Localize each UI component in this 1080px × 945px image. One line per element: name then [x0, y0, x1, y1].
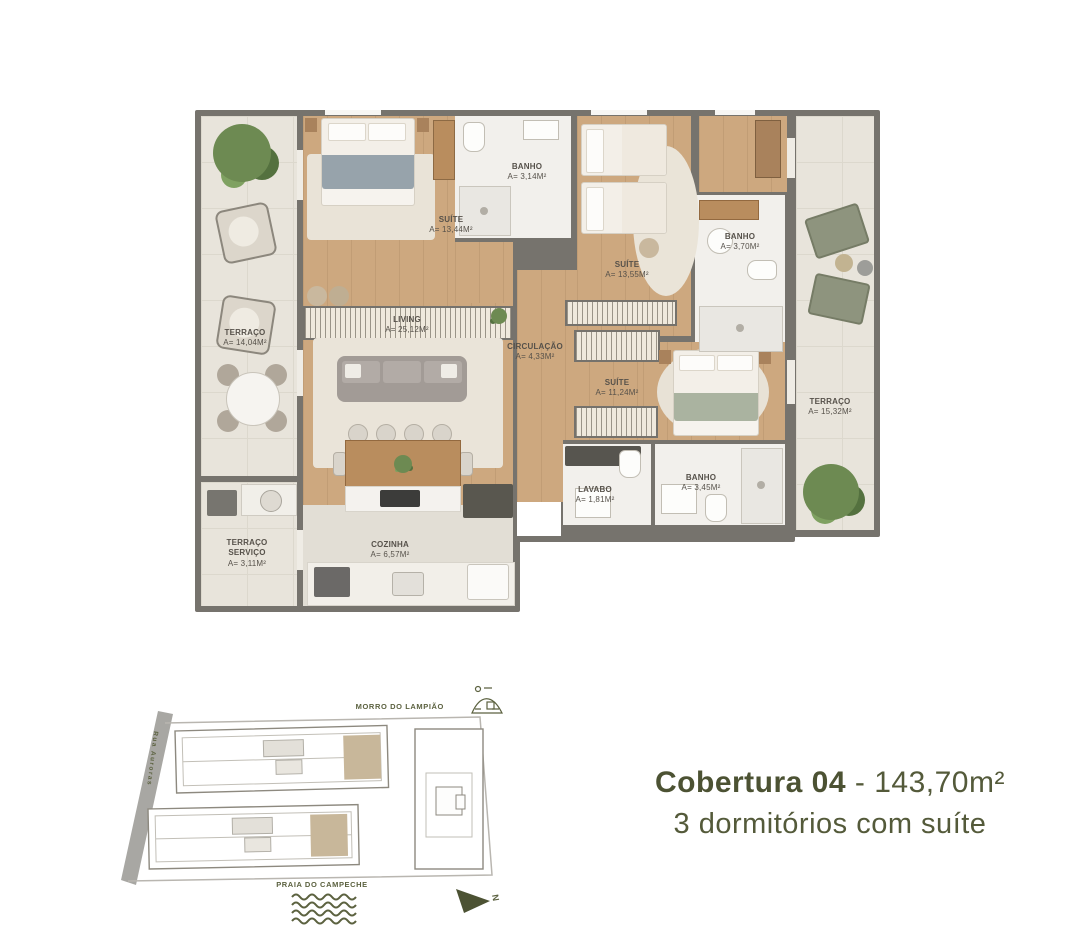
door-opening	[297, 530, 303, 570]
room-name: LAVABO	[555, 485, 635, 495]
title-separator: -	[846, 766, 874, 799]
shower	[741, 448, 783, 524]
throw-pillow	[441, 364, 457, 378]
entry-notch	[517, 502, 561, 536]
room-suite-1-ext	[455, 242, 513, 306]
room-name: TERRAÇO SERVIÇO	[221, 538, 273, 559]
room-area: A= 15,32m²	[790, 407, 870, 417]
wardrobe-unit	[433, 120, 455, 180]
bed-suite-3	[673, 350, 759, 436]
pillow	[717, 355, 753, 371]
room-name: TERRAÇO	[205, 328, 285, 338]
unit-highlight	[343, 735, 381, 780]
pillow	[586, 129, 604, 173]
room-label-suite1: SUÍTE A= 13,44m²	[411, 215, 491, 236]
building-3	[415, 729, 483, 869]
window	[591, 110, 647, 115]
chair	[459, 452, 473, 476]
pouf	[329, 286, 349, 306]
title-line-2: 3 dormitórios com suíte	[600, 804, 1060, 844]
shower	[699, 306, 783, 352]
plant	[803, 464, 859, 520]
pouf	[639, 238, 659, 258]
unit-area: 143,70m²	[874, 766, 1005, 799]
plant	[491, 308, 507, 324]
room-name: SUÍTE	[587, 260, 667, 270]
room-area: A= 4,33m²	[495, 352, 575, 362]
drain	[757, 481, 765, 489]
side-table	[857, 260, 873, 276]
room-label-living: LIVING A= 25,12m²	[367, 315, 447, 336]
nightstand	[659, 350, 671, 364]
room-area: A= 13,55m²	[587, 270, 667, 280]
room-label-banho3: BANHO A= 3,45m²	[661, 473, 741, 494]
pillow	[679, 355, 715, 371]
room-label-cozinha: COZINHA A= 6,57m²	[350, 540, 430, 561]
room-area: A= 6,57m²	[350, 550, 430, 560]
page: { "title": { "unit": "Cobertura 04", "se…	[0, 0, 1080, 945]
room-label-terraco-servico: TERRAÇO SERVIÇO A= 3,11m²	[221, 538, 273, 569]
sink	[392, 572, 424, 596]
north-label: N	[490, 894, 501, 903]
building-2	[148, 805, 359, 869]
north-arrow: N	[456, 889, 501, 913]
counter-dark	[463, 484, 513, 518]
bed-suite-1	[321, 118, 415, 206]
room-label-terraco: TERRAÇO A= 14,04m²	[205, 328, 285, 349]
armchair-cushion	[226, 214, 262, 250]
wardrobe-strip	[565, 300, 677, 326]
room-name: CIRCULAÇÃO	[495, 342, 575, 352]
blanket	[674, 393, 758, 421]
room-area: A= 3,11m²	[221, 559, 273, 569]
room-name: BANHO	[487, 162, 567, 172]
unit-highlight	[310, 814, 348, 857]
room-area: A= 3,14m²	[487, 172, 567, 182]
toilet	[747, 260, 777, 280]
room-label-suite2: SUÍTE A= 13,55m²	[587, 260, 667, 281]
room-area: A= 1,81m²	[555, 495, 635, 505]
door-opening	[787, 138, 795, 178]
washer	[207, 490, 237, 516]
blanket	[322, 155, 414, 189]
waves-icon	[292, 895, 356, 924]
window	[715, 110, 755, 115]
building-1	[175, 725, 389, 793]
room-name: BANHO	[700, 232, 780, 242]
title-line-1: Cobertura 04 - 143,70m²	[600, 762, 1060, 804]
cooktop	[380, 490, 420, 507]
wardrobe-unit	[755, 120, 781, 178]
drain	[480, 207, 488, 215]
window	[325, 110, 381, 115]
plant	[394, 455, 412, 473]
dining-island	[345, 440, 461, 488]
room-label-banho1: BANHO A= 3,14m²	[487, 162, 567, 183]
pillow	[328, 123, 366, 141]
blanket-fold	[674, 421, 758, 435]
pillow	[368, 123, 406, 141]
drain	[736, 324, 744, 332]
sofa-cushion	[383, 361, 421, 383]
blanket-fold	[322, 189, 414, 205]
side-table	[835, 254, 853, 272]
toilet	[619, 450, 641, 478]
basin	[260, 490, 282, 512]
door-opening	[297, 350, 303, 396]
bed-suite-2a	[581, 124, 667, 176]
room-area: A= 11,24m²	[577, 388, 657, 398]
room-label-banho2: BANHO A= 3,70m²	[700, 232, 780, 253]
praia-label: PRAIA DO CAMPECHE	[276, 880, 368, 889]
blanket	[622, 183, 666, 233]
wardrobe-strip	[574, 406, 658, 438]
nightstand	[417, 118, 429, 132]
unit-name: Cobertura 04	[655, 766, 846, 799]
sink	[523, 120, 559, 140]
oven	[314, 567, 350, 597]
bed-suite-2b	[581, 182, 667, 234]
sofa	[337, 356, 467, 402]
room-name: COZINHA	[350, 540, 430, 550]
title-block: Cobertura 04 - 143,70m² 3 dormitórios co…	[600, 762, 1060, 844]
vanity	[699, 200, 759, 220]
blanket	[622, 125, 666, 175]
room-name: SUÍTE	[411, 215, 491, 225]
pillow	[586, 187, 604, 231]
plant	[213, 124, 271, 182]
room-name: SUÍTE	[577, 378, 657, 388]
fridge	[467, 564, 509, 600]
wardrobe-strip	[574, 330, 660, 362]
room-area: A= 14,04m²	[205, 338, 285, 348]
nightstand	[759, 350, 771, 364]
room-name: TERRAÇO	[790, 397, 870, 407]
room-label-terraco2: TERRAÇO A= 15,32m²	[790, 397, 870, 418]
room-area: A= 25,12m²	[367, 325, 447, 335]
site-plan: N MORRO DO LAMPIÃO PRAIA DO CAMPECHE Rua…	[120, 683, 625, 943]
room-name: LIVING	[367, 315, 447, 325]
floor-plan: TERRAÇO A= 14,04m² SUÍTE A= 13,44m² BANH…	[195, 110, 885, 612]
room-label-suite3: SUÍTE A= 11,24m²	[577, 378, 657, 399]
nightstand	[305, 118, 317, 132]
toilet	[705, 494, 727, 522]
room-name: BANHO	[661, 473, 741, 483]
room-area: A= 13,44m²	[411, 225, 491, 235]
room-area: A= 3,70m²	[700, 242, 780, 252]
hill-icon	[472, 687, 502, 714]
terrace-table	[226, 372, 280, 426]
armchair	[214, 201, 278, 265]
toilet	[463, 122, 485, 152]
pouf	[307, 286, 327, 306]
laundry-counter	[241, 484, 297, 516]
kitchen-counter	[345, 486, 461, 512]
throw-pillow	[345, 364, 361, 378]
door-opening	[297, 150, 303, 200]
room-label-lavabo: LAVABO A= 1,81m²	[555, 485, 635, 506]
room-area: A= 3,45m²	[661, 483, 741, 493]
room-label-circulacao: CIRCULAÇÃO A= 4,33m²	[495, 342, 575, 363]
morro-label: MORRO DO LAMPIÃO	[356, 702, 444, 711]
